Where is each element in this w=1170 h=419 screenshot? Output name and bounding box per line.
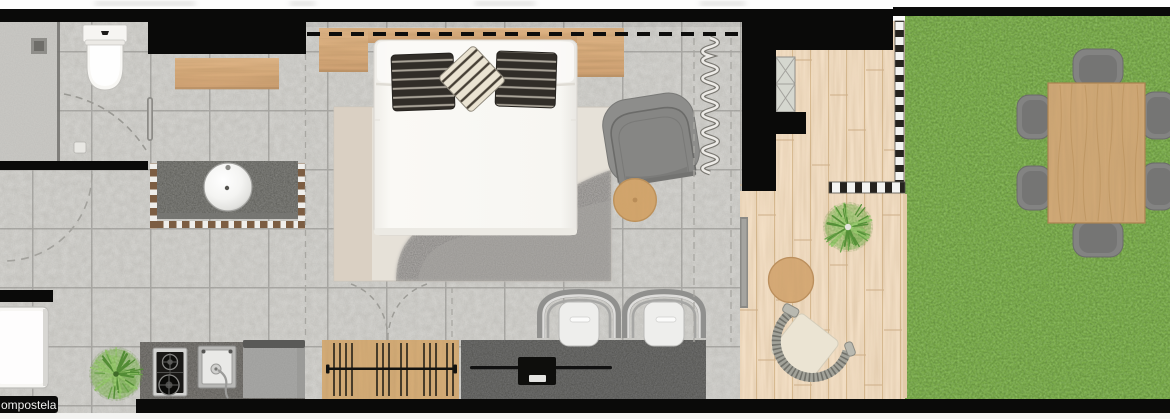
- svg-text:ompostela: ompostela: [1, 398, 57, 412]
